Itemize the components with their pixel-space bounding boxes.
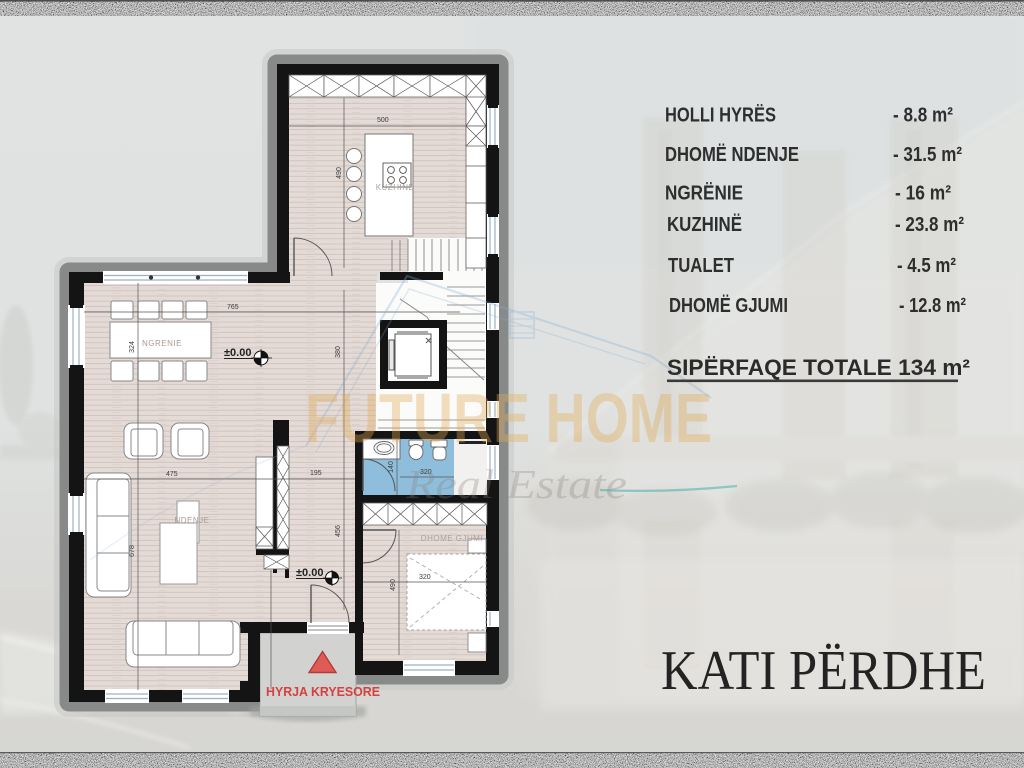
svg-text:195: 195: [310, 470, 322, 477]
svg-text:NGRËNIE: NGRËNIE: [665, 182, 743, 205]
svg-text:FUTURE HOME: FUTURE HOME: [305, 379, 712, 457]
svg-text:- 8.8 m²: - 8.8 m²: [893, 104, 953, 127]
svg-text:490: 490: [336, 167, 343, 179]
svg-text:678: 678: [129, 545, 136, 557]
svg-text:- 23.8 m²: - 23.8 m²: [895, 213, 964, 236]
svg-text:KUZHINË: KUZHINË: [667, 213, 742, 236]
svg-text:490: 490: [390, 579, 397, 591]
svg-text:HOLLI HYRËS: HOLLI HYRËS: [665, 104, 776, 127]
svg-text:KUZHINE: KUZHINE: [376, 183, 415, 192]
svg-text:DHOME GJUMI: DHOME GJUMI: [421, 534, 483, 543]
svg-text:- 4.5 m²: - 4.5 m²: [897, 254, 956, 277]
svg-text:TUALET: TUALET: [668, 254, 734, 277]
svg-text:324: 324: [129, 341, 136, 353]
svg-text:HYRJA KRYESORE: HYRJA KRYESORE: [266, 684, 380, 699]
svg-text:DHOMË NDENJE: DHOMË NDENJE: [665, 143, 799, 166]
svg-text:765: 765: [227, 304, 239, 311]
svg-text:- 12.8 m²: - 12.8 m²: [899, 294, 966, 317]
svg-text:380: 380: [335, 346, 342, 358]
svg-text:475: 475: [166, 471, 178, 478]
svg-text:±0.00: ±0.00: [224, 347, 251, 359]
svg-text:NGRENIE: NGRENIE: [142, 339, 182, 348]
svg-text:Real Estate: Real Estate: [405, 461, 627, 507]
svg-text:500: 500: [377, 117, 389, 124]
svg-text:SIPËRFAQE TOTALE 134 m²: SIPËRFAQE TOTALE 134 m²: [667, 355, 970, 380]
svg-text:- 16 m²: - 16 m²: [895, 182, 951, 205]
svg-text:±0.00: ±0.00: [296, 567, 323, 579]
svg-text:456: 456: [335, 525, 342, 537]
svg-text:NDENJE: NDENJE: [174, 516, 209, 525]
svg-text:DHOMË GJUMI: DHOMË GJUMI: [669, 294, 788, 317]
svg-text:KATI PËRDHE: KATI PËRDHE: [661, 640, 986, 702]
svg-text:140: 140: [388, 461, 395, 473]
svg-text:- 31.5 m²: - 31.5 m²: [893, 143, 962, 166]
svg-text:320: 320: [419, 574, 431, 581]
